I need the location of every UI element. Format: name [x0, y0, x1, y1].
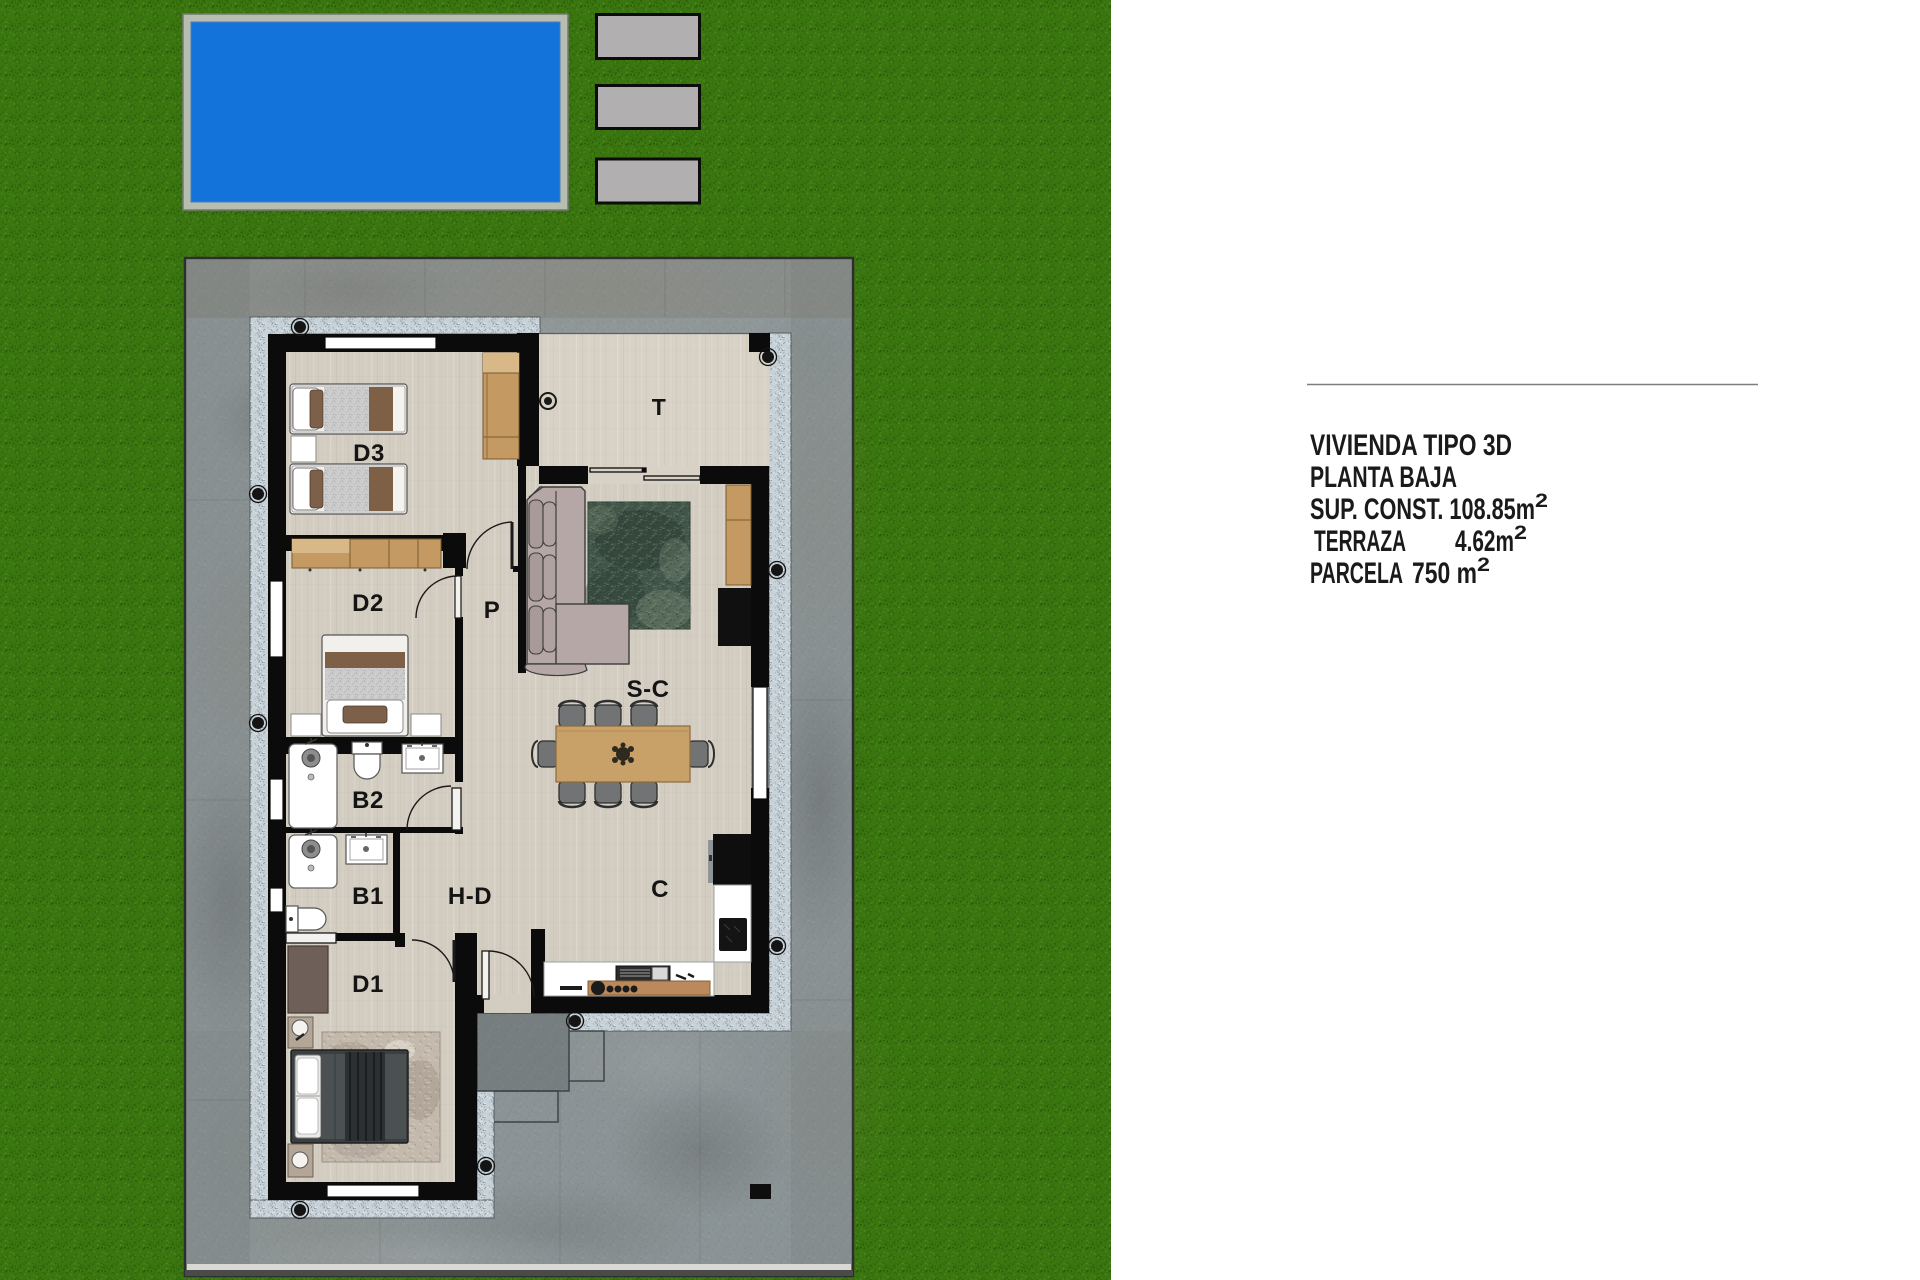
svg-text:T: T [652, 394, 667, 420]
svg-text:4.62m: 4.62m [1455, 525, 1514, 558]
svg-text:SUP. CONST. 108.85m: SUP. CONST. 108.85m [1310, 493, 1535, 526]
svg-text:VIVIENDA TIPO 3D: VIVIENDA TIPO 3D [1310, 429, 1512, 462]
svg-text:D2: D2 [352, 590, 384, 617]
svg-text:H-D: H-D [448, 883, 492, 910]
svg-text:S-C: S-C [627, 676, 670, 703]
svg-text:D3: D3 [353, 440, 385, 467]
svg-text:TERRAZA: TERRAZA [1314, 525, 1406, 558]
svg-text:PLANTA BAJA: PLANTA BAJA [1310, 461, 1457, 494]
svg-text:PARCELA: PARCELA [1310, 557, 1403, 590]
svg-text:750 m: 750 m [1412, 557, 1477, 590]
svg-text:2: 2 [1514, 523, 1527, 544]
svg-text:B2: B2 [352, 787, 384, 814]
svg-text:2: 2 [1477, 555, 1490, 576]
svg-text:B1: B1 [352, 883, 384, 910]
svg-text:P: P [484, 597, 501, 624]
svg-text:C: C [651, 876, 669, 903]
svg-text:D1: D1 [352, 971, 384, 998]
svg-text:2: 2 [1535, 491, 1548, 512]
